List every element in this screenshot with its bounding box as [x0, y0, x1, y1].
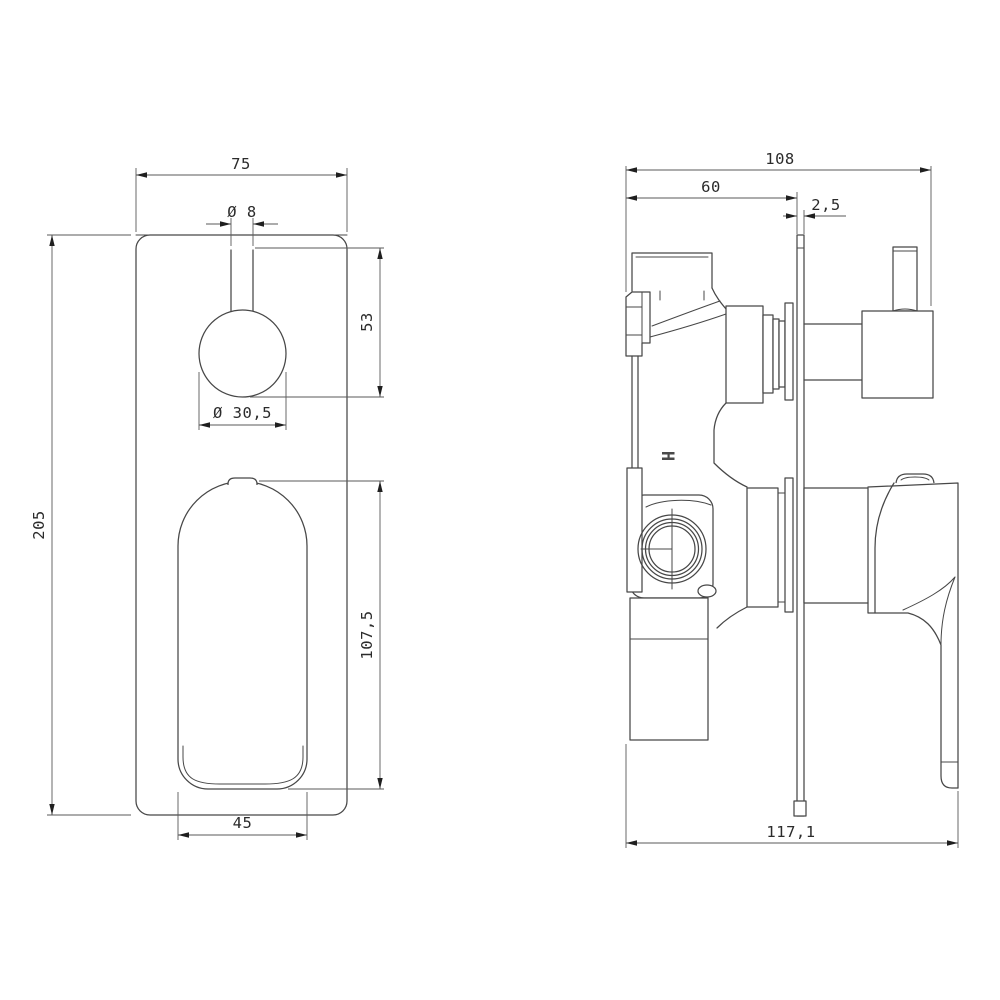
dim-arrows: [786, 213, 815, 218]
dim-lever-height-label: 107,5: [358, 610, 376, 659]
lever-body-left-edge: [875, 483, 894, 613]
dim-plate-height: 205: [30, 235, 55, 815]
port-inner-walls: [660, 291, 704, 300]
front-lever-top-cap: [228, 478, 257, 485]
housing-lower-fillet: [717, 607, 747, 628]
diverter-flange: [785, 478, 793, 612]
side-knob: [804, 247, 933, 398]
side-lever: [804, 474, 958, 788]
cartridge-flange: [785, 303, 793, 400]
left-inlet-flange-detail: [626, 292, 642, 343]
dim-stem-diameter-label: Ø 8: [227, 203, 257, 221]
outlet-bump: [698, 585, 716, 597]
dim-stem-to-knob: 53: [358, 248, 383, 397]
dim-plate-width: 75: [136, 155, 347, 178]
technical-drawing: 75 Ø 8 53 Ø 30,5 205: [0, 0, 1000, 1000]
cartridge-step: [763, 315, 773, 393]
top-port: [632, 253, 712, 291]
dim-plate-thickness-label: 2,5: [811, 196, 841, 214]
lever-top-and-right-edge: [868, 483, 958, 788]
knob-body-side: [862, 311, 933, 398]
cartridge-ring-2: [779, 321, 785, 387]
body-right-edge: [714, 403, 747, 487]
dim-total-depth-label: 117,1: [766, 823, 815, 841]
port-right-fillet: [712, 288, 726, 309]
diverter-housing-ticks: [778, 493, 785, 602]
lever-underside: [868, 603, 958, 788]
diverter-housing: [747, 488, 778, 607]
dim-depth-to-knob-label: 108: [765, 150, 795, 168]
side-view: H 1: [626, 150, 958, 848]
body-lower-block: [630, 598, 708, 740]
front-knob: [199, 310, 286, 397]
dim-lever-height: 107,5: [358, 481, 383, 789]
left-inlet-flange: [626, 292, 650, 356]
dim-lever-width-label: 45: [233, 814, 253, 832]
dim-depth-to-knob: 108: [626, 150, 931, 173]
dim-plate-width-label: 75: [231, 155, 251, 173]
wall-plate-edge: [797, 235, 804, 816]
front-view: 75 Ø 8 53 Ø 30,5 205: [30, 155, 384, 840]
dim-body-depth: 60: [626, 178, 797, 201]
knob-sleeve-lines: [804, 324, 862, 380]
cartridge-barrel: [726, 306, 763, 403]
hot-water-marker: H: [657, 451, 677, 461]
dim-knob-diameter-label: Ø 30,5: [213, 404, 272, 422]
cartridge-ring-1: [773, 319, 779, 389]
lever-wedge-curves: [903, 577, 955, 645]
dim-stem-to-knob-label: 53: [358, 312, 376, 332]
knob-stem-side: [893, 247, 917, 311]
dim-stem-diameter: Ø 8: [206, 203, 278, 227]
drawing-page: 75 Ø 8 53 Ø 30,5 205: [0, 0, 1000, 1000]
dim-arrows: [220, 221, 264, 226]
lever-top-cap-side: [896, 474, 934, 483]
dim-plate-height-label: 205: [30, 510, 48, 540]
front-lever-handle: [178, 482, 307, 790]
lever-base-housing: [804, 488, 868, 603]
wall-plate-bottom-cap: [794, 801, 806, 816]
side-valve-body: H: [626, 253, 793, 740]
dim-lever-width: 45: [178, 814, 307, 838]
dim-body-depth-label: 60: [701, 178, 721, 196]
dim-total-depth: 117,1: [626, 823, 958, 846]
dim-plate-thickness: 2,5: [783, 196, 846, 219]
body-flow-curves: [650, 301, 726, 337]
left-mounting-bracket: [627, 468, 642, 592]
